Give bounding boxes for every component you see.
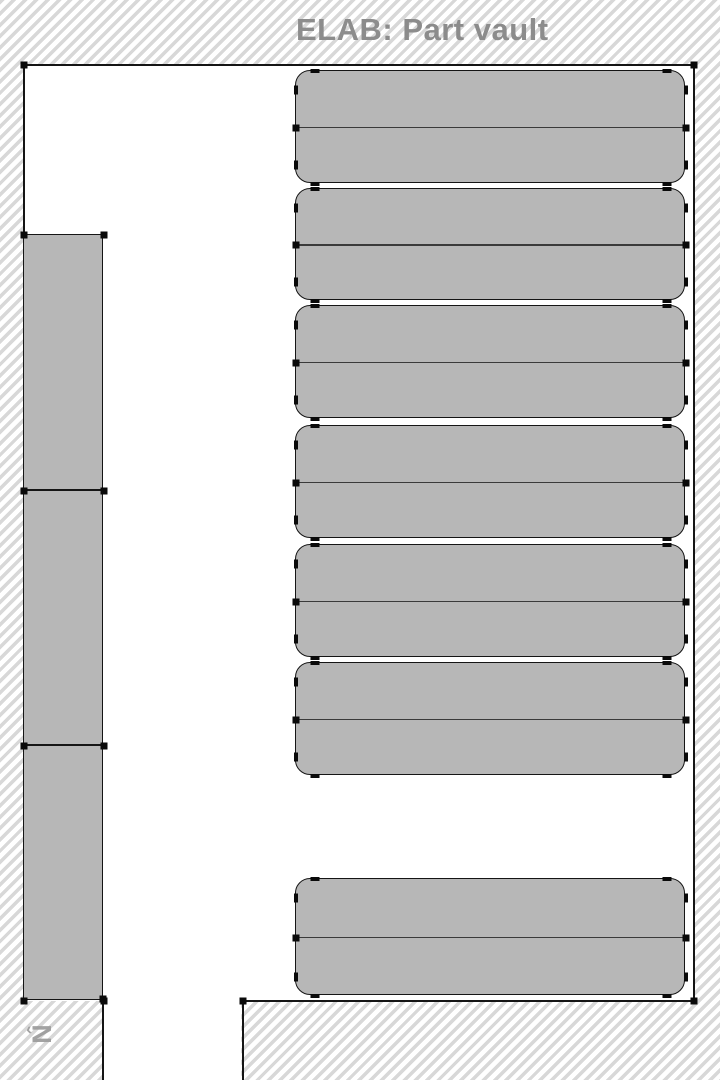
selection-handle (294, 753, 298, 762)
shelf-group-1[interactable] (295, 70, 685, 183)
selection-handle (293, 479, 300, 486)
selection-handle (311, 304, 320, 308)
room-plan (0, 0, 720, 1080)
selection-handle (683, 716, 690, 723)
selection-handle (100, 996, 107, 1003)
selection-handle (663, 299, 672, 303)
selection-handle (663, 537, 672, 541)
selection-handle (293, 124, 300, 131)
selection-handle (311, 187, 320, 191)
selection-handle (691, 998, 698, 1005)
selection-handle (311, 877, 320, 881)
wall-segment-4 (242, 1000, 695, 1002)
selection-handle (663, 877, 672, 881)
selection-handle (663, 424, 672, 428)
selection-handle (101, 232, 108, 239)
selection-handle (684, 753, 688, 762)
selection-handle (683, 242, 690, 249)
selection-handle (684, 278, 688, 287)
selection-handle (684, 973, 688, 982)
selection-handle (101, 488, 108, 495)
selection-handle (311, 656, 320, 660)
selection-handle (294, 516, 298, 525)
selection-handle (663, 417, 672, 421)
selection-handle (663, 304, 672, 308)
selection-handle (21, 62, 28, 69)
selection-handle (294, 161, 298, 170)
selection-handle (21, 488, 28, 495)
selection-handle (684, 86, 688, 95)
shelf-divider (296, 127, 684, 129)
selection-handle (294, 396, 298, 405)
selection-handle (240, 998, 247, 1005)
selection-handle (293, 359, 300, 366)
selection-handle (294, 86, 298, 95)
wall-segment-5 (242, 1000, 244, 1080)
shelf-divider (296, 244, 684, 246)
selection-handle (684, 516, 688, 525)
selection-handle (311, 774, 320, 778)
selection-handle (684, 204, 688, 213)
shelf-divider (296, 482, 684, 484)
shelf-divider (296, 601, 684, 603)
selection-handle (311, 994, 320, 998)
selection-handle (21, 998, 28, 1005)
shelf-group-3[interactable] (295, 305, 685, 418)
selection-handle (683, 124, 690, 131)
shelf-group-5[interactable] (295, 544, 685, 657)
selection-handle (294, 321, 298, 330)
selection-handle (663, 543, 672, 547)
selection-handle (684, 321, 688, 330)
selection-handle (663, 994, 672, 998)
selection-handle (21, 743, 28, 750)
selection-handle (294, 635, 298, 644)
selection-handle (294, 894, 298, 903)
wall-segment-1 (23, 64, 695, 66)
shelf-group-4[interactable] (295, 425, 685, 538)
selection-handle (293, 598, 300, 605)
selection-handle (294, 560, 298, 569)
shelf-divider (296, 719, 684, 721)
selection-handle (684, 161, 688, 170)
selection-handle (684, 441, 688, 450)
selection-handle (684, 560, 688, 569)
north-arrow-letter: N (25, 1024, 56, 1044)
selection-handle (683, 359, 690, 366)
shelf-divider (296, 362, 684, 364)
selection-handle (294, 204, 298, 213)
wall-rack-2[interactable] (23, 490, 103, 745)
selection-handle (663, 661, 672, 665)
wall-rack-3[interactable] (23, 745, 103, 1000)
selection-handle (293, 242, 300, 249)
selection-handle (294, 441, 298, 450)
shelf-divider (296, 937, 684, 939)
page-title: ELAB: Part vault (296, 12, 549, 48)
selection-handle (311, 543, 320, 547)
selection-handle (663, 656, 672, 660)
selection-handle (663, 182, 672, 186)
wall-segment-6 (102, 998, 104, 1080)
wall-segment-3 (693, 64, 695, 1002)
selection-handle (311, 661, 320, 665)
wall-rack-1[interactable] (23, 234, 103, 490)
selection-handle (294, 678, 298, 687)
selection-handle (683, 598, 690, 605)
floorplan-viewport: ELAB: Part vault ‹N (0, 0, 720, 1080)
shelf-group-6[interactable] (295, 662, 685, 775)
selection-handle (684, 635, 688, 644)
selection-handle (684, 396, 688, 405)
selection-handle (683, 934, 690, 941)
selection-handle (311, 417, 320, 421)
selection-handle (311, 69, 320, 73)
selection-handle (663, 187, 672, 191)
selection-handle (663, 69, 672, 73)
selection-handle (684, 894, 688, 903)
selection-handle (294, 278, 298, 287)
selection-handle (663, 774, 672, 778)
selection-handle (311, 299, 320, 303)
selection-handle (293, 934, 300, 941)
selection-handle (683, 479, 690, 486)
selection-handle (311, 182, 320, 186)
selection-handle (21, 232, 28, 239)
selection-handle (684, 678, 688, 687)
shelf-group-7[interactable] (295, 878, 685, 995)
selection-handle (294, 973, 298, 982)
shelf-group-2[interactable] (295, 188, 685, 300)
selection-handle (311, 537, 320, 541)
selection-handle (101, 743, 108, 750)
selection-handle (311, 424, 320, 428)
selection-handle (691, 62, 698, 69)
floor-area-2 (104, 999, 241, 1080)
selection-handle (293, 716, 300, 723)
